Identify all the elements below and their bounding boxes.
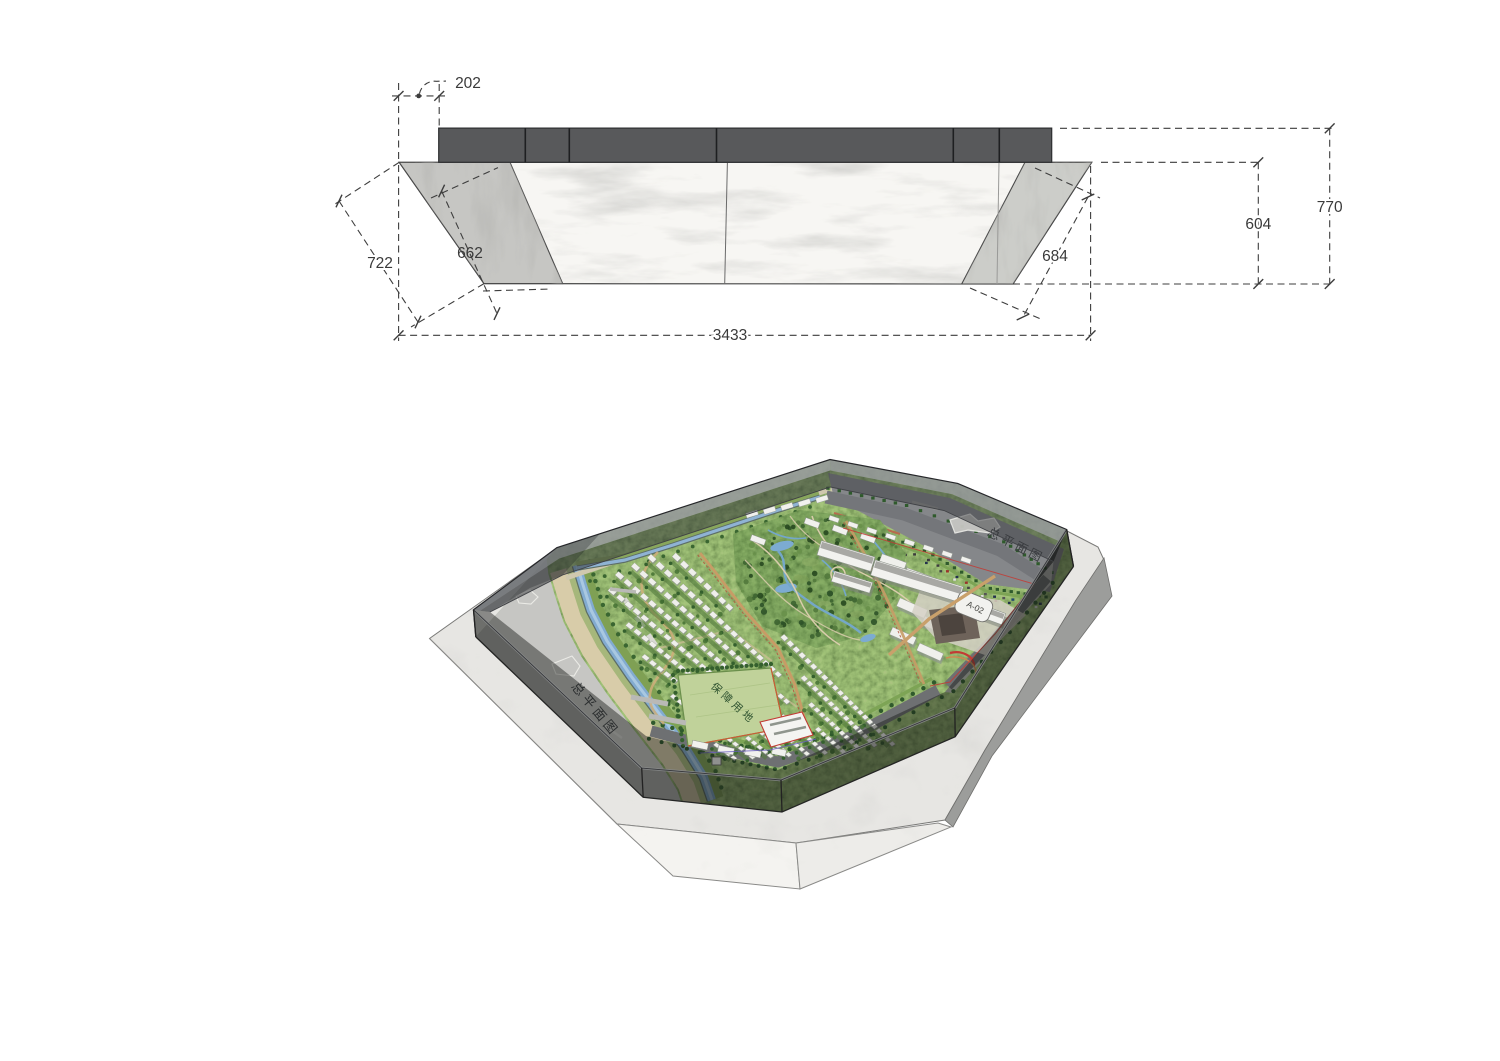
svg-text:604: 604 [1245, 216, 1271, 233]
svg-text:202: 202 [455, 75, 481, 92]
svg-text:3433: 3433 [713, 327, 747, 344]
svg-text:722: 722 [367, 255, 393, 272]
svg-text:662: 662 [457, 245, 483, 262]
svg-text:770: 770 [1317, 199, 1343, 216]
svg-text:684: 684 [1042, 248, 1068, 265]
